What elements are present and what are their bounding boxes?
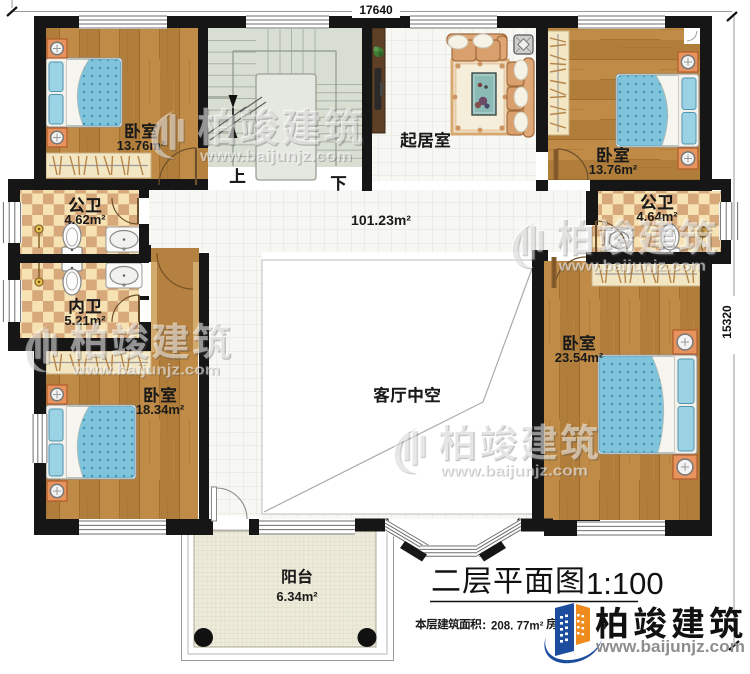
svg-text:4.62m²: 4.62m² [64,212,106,227]
svg-text:208. 77m²: 208. 77m² [491,621,544,633]
svg-text:6.34m²: 6.34m² [276,589,318,604]
svg-text:17640: 17640 [359,3,393,17]
svg-text:www.baijunjz.com: www.baijunjz.com [595,637,745,656]
svg-text:1:100: 1:100 [586,566,664,601]
svg-text:www.baijunjz.com: www.baijunjz.com [557,257,706,274]
svg-text:18.34m²: 18.34m² [136,402,185,417]
svg-text:www.baijunjz.com: www.baijunjz.com [71,361,220,378]
svg-text:23.54m²: 23.54m² [555,350,604,365]
svg-text:101.23m²: 101.23m² [351,212,411,228]
svg-text:www.baijunjz.com: www.baijunjz.com [439,462,588,479]
svg-text:5.21m²: 5.21m² [64,313,106,328]
svg-text::: : [482,617,486,632]
svg-text:15320: 15320 [720,305,734,339]
svg-text:www.baijunjz.com: www.baijunjz.com [199,148,352,165]
svg-text:13.76m²: 13.76m² [589,162,638,177]
